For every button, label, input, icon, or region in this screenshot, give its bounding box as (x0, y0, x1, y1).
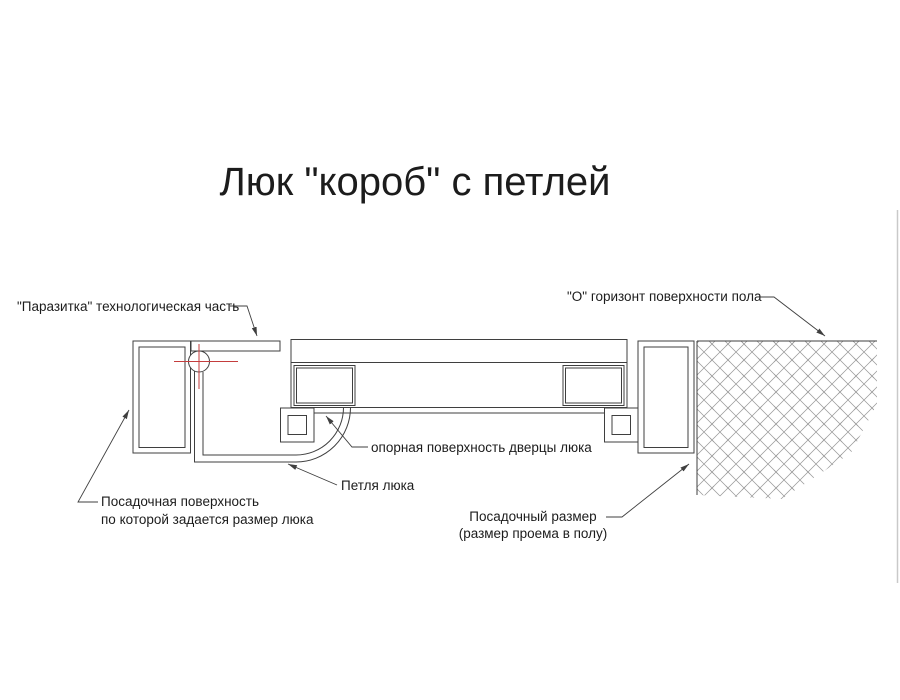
label-parasitka: "Паразитка" технологическая часть (17, 299, 239, 314)
label-seating-surface: Посадочная поверхность по которой задает… (101, 494, 314, 527)
hatch-section-drawing: "Паразитка" технологическая часть "О" го… (0, 0, 900, 700)
svg-text:Посадочная поверхность: Посадочная поверхность (101, 494, 259, 509)
label-seating-size: Посадочный размер (размер проема в полу) (459, 509, 608, 541)
leader-horizon (760, 297, 825, 336)
parasitka-bar (191, 341, 280, 351)
leader-seating-surface (78, 410, 129, 502)
label-hinge: Петля люка (341, 478, 415, 493)
floor-hatch (697, 341, 877, 499)
leader-hinge (288, 464, 337, 485)
door-top-slab (291, 340, 627, 363)
label-horizon: "О" горизонт поверхности пола (567, 289, 762, 304)
left-frame-profile (133, 341, 191, 453)
hinge-bracket-right (605, 408, 639, 442)
page: Люк "короб" с петлей (0, 0, 900, 700)
hatch-door (291, 340, 627, 414)
door-panel (291, 363, 627, 408)
hinge-bracket-left (281, 408, 315, 442)
svg-text:(размер проема в полу): (размер проема в полу) (459, 526, 608, 541)
right-frame-profile (638, 341, 694, 453)
leader-seating-size (606, 464, 689, 517)
label-support-surface: опорная поверхность дверцы люка (371, 440, 592, 455)
svg-text:по которой задается размер люк: по которой задается размер люка (101, 512, 314, 527)
leader-support-surface (326, 416, 368, 447)
svg-text:Посадочный размер: Посадочный размер (469, 509, 596, 524)
